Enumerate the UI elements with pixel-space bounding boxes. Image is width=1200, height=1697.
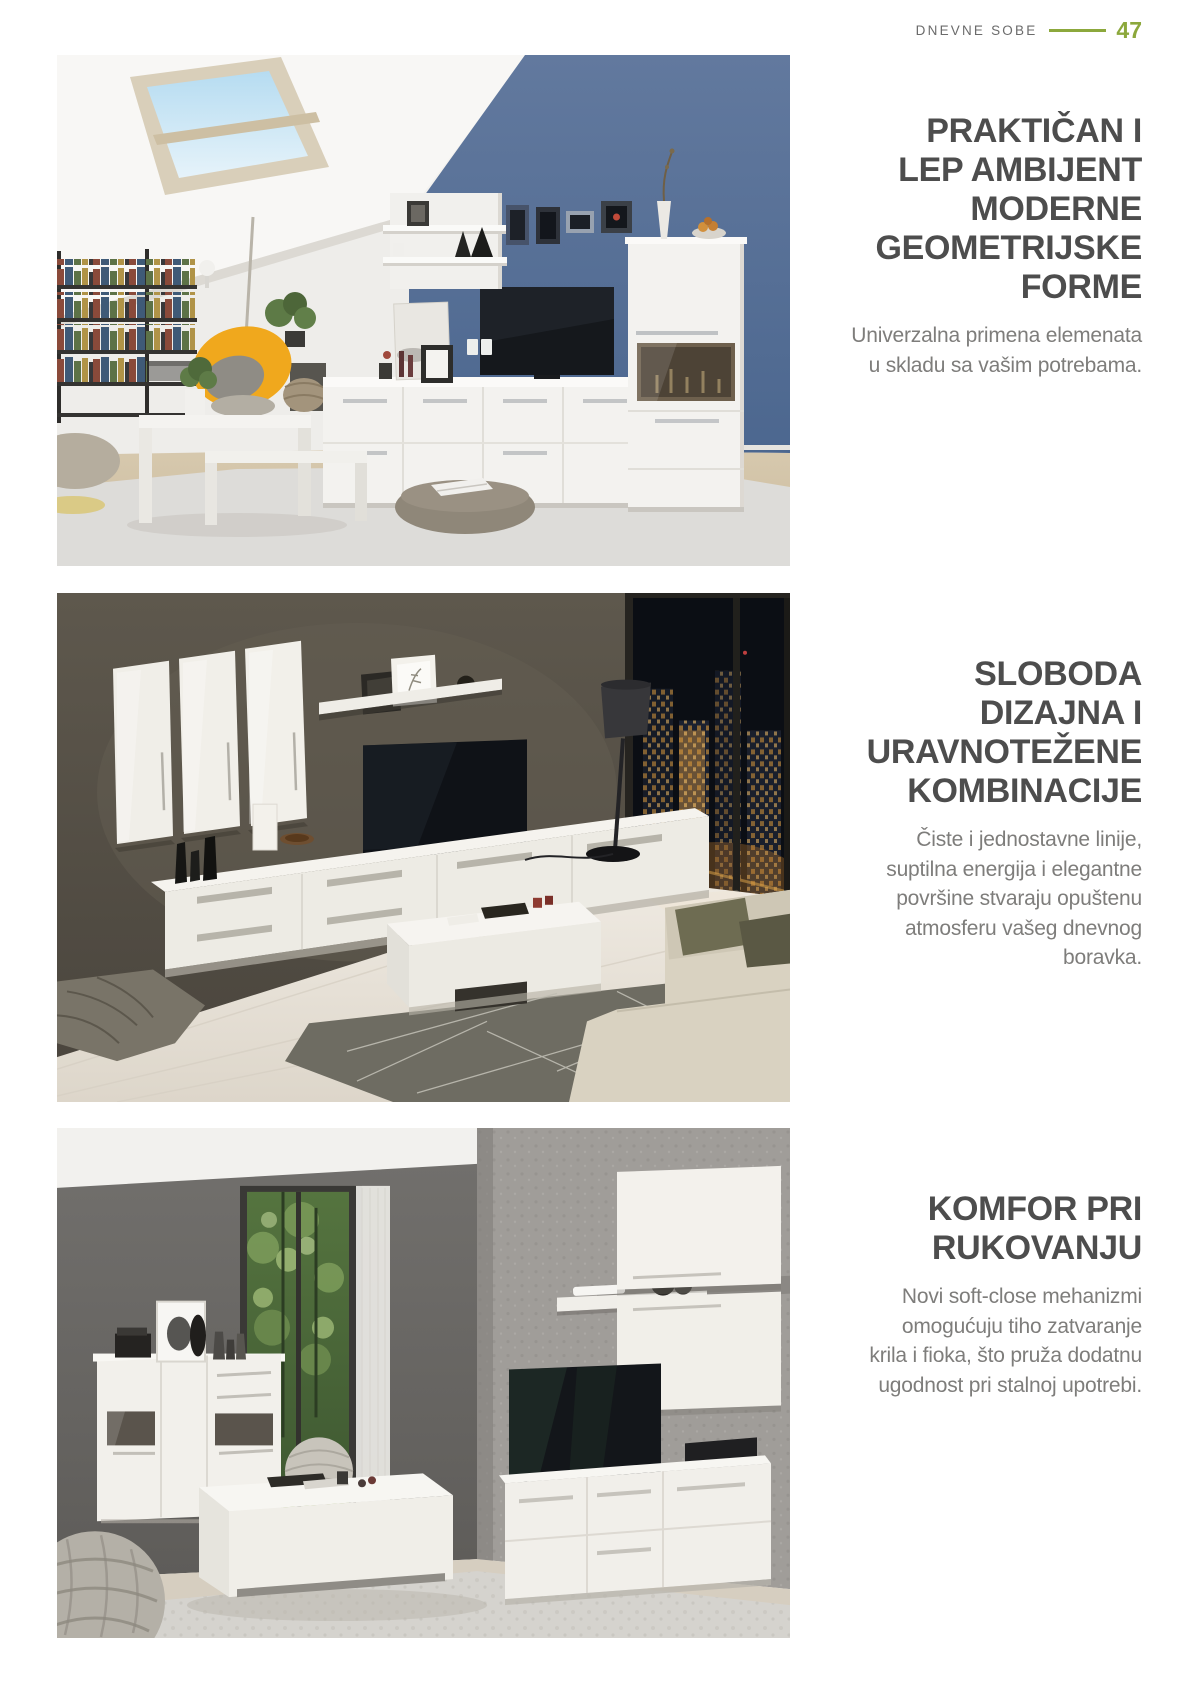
section-body: Novi soft-close mehanizmi omogućuju tiho…: [802, 1282, 1142, 1400]
heading-line: FORME: [802, 268, 1142, 307]
section-heading: KOMFOR PRI RUKOVANJU: [802, 1190, 1142, 1268]
photo-city-night-living-room: [57, 593, 790, 1102]
tv-sideboard: [499, 1455, 771, 1605]
coffee-table: [187, 1471, 487, 1621]
section-label: DNEVNE SOBE: [916, 23, 1038, 38]
body-line: Čiste i jednostavne linije,: [802, 825, 1142, 855]
body-line: Novi soft-close mehanizmi: [802, 1282, 1142, 1312]
heading-line: MODERNE: [802, 190, 1142, 229]
section-body: Univerzalna primena elemenata u skladu s…: [802, 321, 1142, 380]
section-copy: KOMFOR PRI RUKOVANJU Novi soft-close meh…: [802, 1128, 1142, 1400]
body-line: Univerzalna primena elemenata: [802, 321, 1142, 351]
wall-shelf-unit: [383, 193, 507, 289]
heading-line: LEP AMBIJENT: [802, 151, 1142, 190]
heading-line: DIZAJNA I: [802, 694, 1142, 733]
heading-line: RUKOVANJU: [802, 1229, 1142, 1268]
catalog-section-komfor: KOMFOR PRI RUKOVANJU Novi soft-close meh…: [57, 1128, 1142, 1638]
body-line: omogućuju tiho zatvaranje: [802, 1312, 1142, 1342]
section-body: Čiste i jednostavne linije, suptilna ene…: [802, 825, 1142, 973]
body-line: u skladu sa vašim potrebama.: [802, 351, 1142, 381]
catalog-page: DNEVNE SOBE 47: [0, 0, 1200, 1697]
heading-line: KOMBINACIJE: [802, 772, 1142, 811]
catalog-section-prakticna-forma: PRAKTIČAN I LEP AMBIJENT MODERNE GEOMETR…: [57, 55, 1142, 566]
body-line: ugodnost pri stalnoj upotrebi.: [802, 1371, 1142, 1401]
photo-attic-living-room: [57, 55, 790, 566]
heading-line: PRAKTIČAN I: [802, 112, 1142, 151]
body-line: boravka.: [802, 943, 1142, 973]
photo-garden-view-living-room: [57, 1128, 790, 1638]
catalog-section-sloboda-dizajna: SLOBODA DIZAJNA I URAVNOTEŽENE KOMBINACI…: [57, 593, 1142, 1102]
body-line: krila i fioka, što pruža dodatnu: [802, 1341, 1142, 1371]
wall-hung-cabinets: [113, 641, 308, 852]
body-line: suptilna energija i elegantne: [802, 855, 1142, 885]
heading-line: GEOMETRIJSKE: [802, 229, 1142, 268]
section-copy: SLOBODA DIZAJNA I URAVNOTEŽENE KOMBINACI…: [802, 593, 1142, 973]
page-header: DNEVNE SOBE 47: [916, 17, 1142, 44]
heading-line: URAVNOTEŽENE: [802, 733, 1142, 772]
page-number: 47: [1116, 17, 1142, 44]
section-copy: PRAKTIČAN I LEP AMBIJENT MODERNE GEOMETR…: [802, 55, 1142, 380]
heading-line: KOMFOR PRI: [802, 1190, 1142, 1229]
section-heading: SLOBODA DIZAJNA I URAVNOTEŽENE KOMBINACI…: [802, 655, 1142, 811]
section-heading: PRAKTIČAN I LEP AMBIJENT MODERNE GEOMETR…: [802, 112, 1142, 307]
heading-line: SLOBODA: [802, 655, 1142, 694]
header-rule-line: [1049, 29, 1106, 32]
body-line: površine stvaraju opuštenu: [802, 884, 1142, 914]
body-line: atmosferu vašeg dnevnog: [802, 914, 1142, 944]
tv: [480, 287, 614, 379]
round-pouf: [395, 478, 535, 534]
display-cabinet: [625, 237, 747, 512]
